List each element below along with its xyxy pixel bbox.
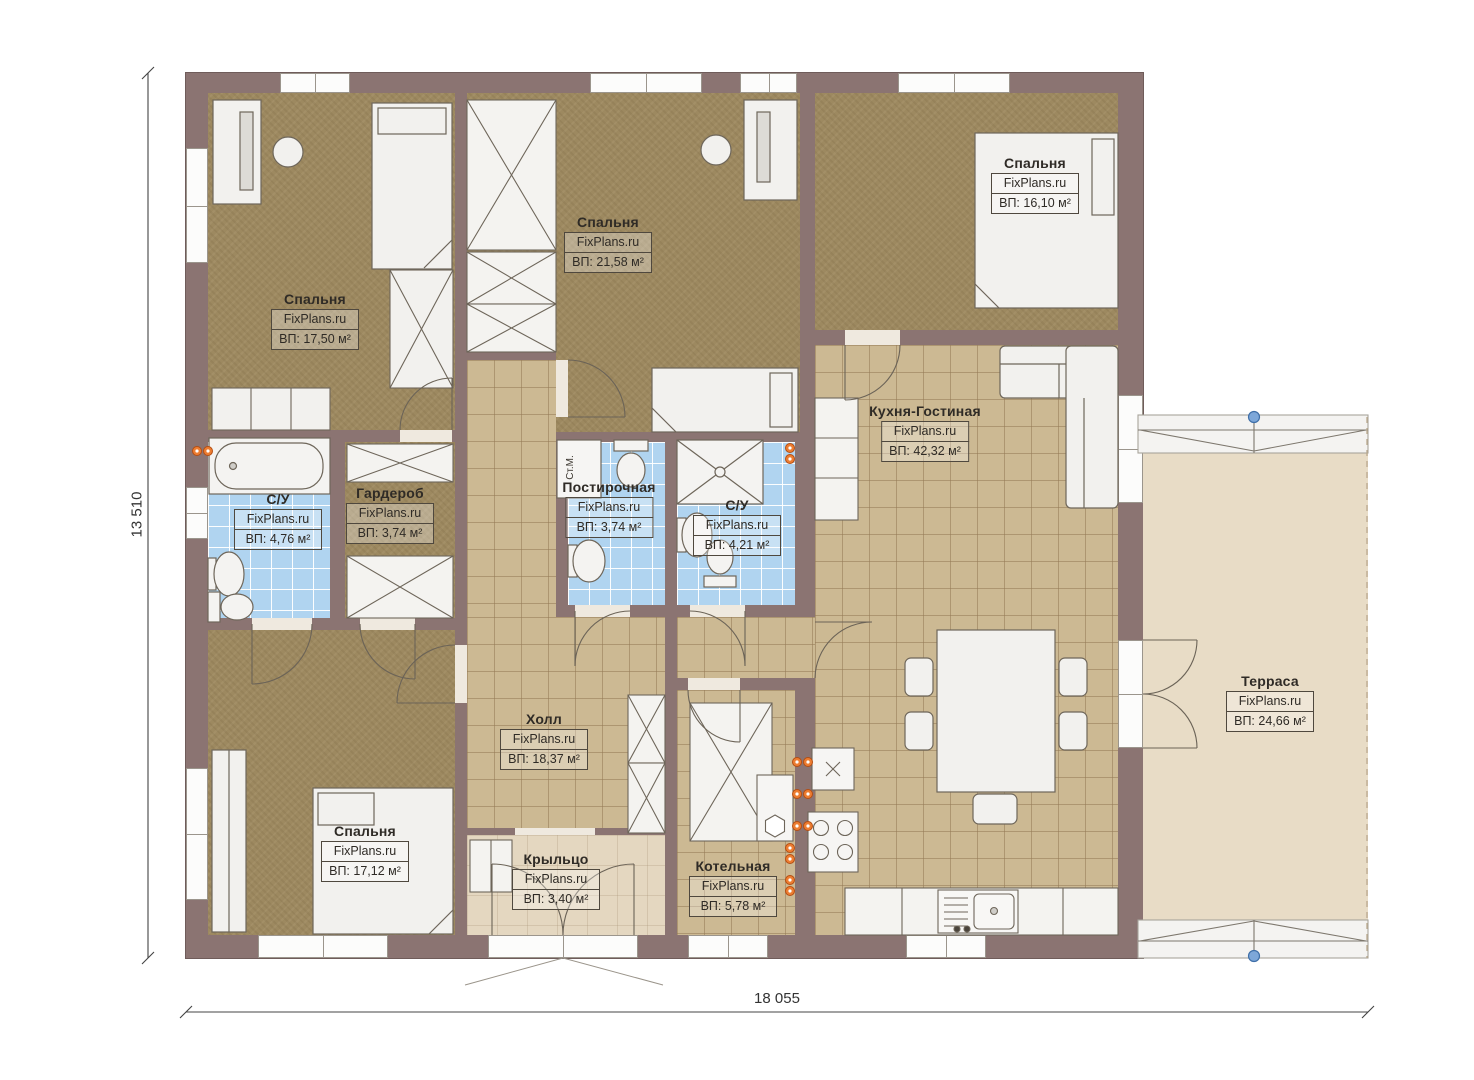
room-name: Спальня xyxy=(334,823,396,839)
watermark: FixPlans.ru xyxy=(234,509,322,530)
porch-canopy-outline xyxy=(465,958,663,985)
room-name: Кухня-Гостиная xyxy=(869,403,981,419)
bench-porch xyxy=(470,840,512,892)
closet-bedroom-2 xyxy=(467,100,556,352)
room-area: ВП: 3,74 м² xyxy=(346,523,434,544)
fridge-icon xyxy=(812,748,854,790)
room-name: С/У xyxy=(725,497,748,513)
room-area: ВП: 21,58 м² xyxy=(564,252,652,273)
room-label-kitchen-living: Кухня-Гостиная FixPlans.ru ВП: 42,32 м² xyxy=(869,403,981,462)
room-label-terrace: Терраса FixPlans.ru ВП: 24,66 м² xyxy=(1226,673,1314,732)
dining-table-icon xyxy=(905,630,1087,824)
watermark: FixPlans.ru xyxy=(321,841,409,862)
room-label-hall: Холл FixPlans.ru ВП: 18,37 м² xyxy=(500,711,588,770)
sink-bathroom-1 xyxy=(208,552,244,596)
room-area: ВП: 3,74 м² xyxy=(565,517,653,538)
watermark: FixPlans.ru xyxy=(500,729,588,750)
room-area: ВП: 4,76 м² xyxy=(234,529,322,550)
shower-icon xyxy=(677,440,763,504)
watermark: FixPlans.ru xyxy=(346,503,434,524)
room-name: С/У xyxy=(266,491,289,507)
bed-bedroom-1 xyxy=(372,103,452,269)
sink-laundry xyxy=(568,540,605,582)
room-area: ВП: 5,78 м² xyxy=(689,896,777,917)
watermark: FixPlans.ru xyxy=(271,309,359,330)
room-label-bedroom-3: Спальня FixPlans.ru ВП: 16,10 м² xyxy=(991,155,1079,214)
room-label-bedroom-1: Спальня FixPlans.ru ВП: 17,50 м² xyxy=(271,291,359,350)
room-area: ВП: 3,40 м² xyxy=(512,889,600,910)
watermark: FixPlans.ru xyxy=(1226,691,1314,712)
watermark: FixPlans.ru xyxy=(693,515,781,536)
room-label-bathroom-2: С/У FixPlans.ru ВП: 4,21 м² xyxy=(693,497,781,556)
room-area: ВП: 42,32 м² xyxy=(881,441,969,462)
sofa-icon xyxy=(1000,346,1118,508)
desk-bedroom-1 xyxy=(213,100,303,204)
room-label-bedroom-2: Спальня FixPlans.ru ВП: 21,58 м² xyxy=(564,214,652,273)
dimension-width-label: 18 055 xyxy=(717,990,837,1007)
floor-plan-canvas: Спальня FixPlans.ru ВП: 17,50 м² Спальня… xyxy=(0,0,1474,1080)
dresser-bedroom-1 xyxy=(212,388,330,430)
watermark: FixPlans.ru xyxy=(689,876,777,897)
watermark: FixPlans.ru xyxy=(991,173,1079,194)
room-area: ВП: 4,21 м² xyxy=(693,535,781,556)
room-area: ВП: 24,66 м² xyxy=(1226,711,1314,732)
room-name: Котельная xyxy=(695,858,770,874)
room-label-boiler: Котельная FixPlans.ru ВП: 5,78 м² xyxy=(689,858,777,917)
water-heater-icon xyxy=(757,775,793,841)
stove-icon xyxy=(808,812,858,872)
watermark: FixPlans.ru xyxy=(881,421,969,442)
room-name: Постирочная xyxy=(562,479,655,495)
watermark: FixPlans.ru xyxy=(565,497,653,518)
room-area: ВП: 17,50 м² xyxy=(271,329,359,350)
room-area: ВП: 17,12 м² xyxy=(321,861,409,882)
toilet-bathroom-1 xyxy=(208,592,253,622)
room-name: Гардероб xyxy=(356,485,424,501)
closet-hall xyxy=(628,695,665,833)
closet-bedroom-1 xyxy=(390,270,453,388)
kitchen-sink-icon xyxy=(938,890,1018,933)
room-name: Спальня xyxy=(284,291,346,307)
room-name: Терраса xyxy=(1241,673,1299,689)
room-label-laundry: Постирочная FixPlans.ru ВП: 3,74 м² xyxy=(562,479,655,538)
watermark: FixPlans.ru xyxy=(512,869,600,890)
bathtub-icon xyxy=(209,438,330,494)
room-name: Спальня xyxy=(577,214,639,230)
room-label-wardrobe: Гардероб FixPlans.ru ВП: 3,74 м² xyxy=(346,485,434,544)
washing-machine-label: Ст.М. xyxy=(565,455,576,480)
room-area: ВП: 18,37 м² xyxy=(500,749,588,770)
kitchen-tall-units xyxy=(815,398,858,520)
bed-bedroom-2 xyxy=(652,368,798,432)
wardrobe-bedroom-4 xyxy=(212,750,246,932)
room-label-porch: Крыльцо FixPlans.ru ВП: 3,40 м² xyxy=(512,851,600,910)
desk-bedroom-2 xyxy=(701,100,797,200)
room-name: Спальня xyxy=(1004,155,1066,171)
room-label-bathroom-1: С/У FixPlans.ru ВП: 4,76 м² xyxy=(234,491,322,550)
dimension-height-label: 13 510 xyxy=(129,470,146,560)
watermark: FixPlans.ru xyxy=(564,232,652,253)
room-area: ВП: 16,10 м² xyxy=(991,193,1079,214)
room-name: Холл xyxy=(526,711,562,727)
room-label-bedroom-4: Спальня FixPlans.ru ВП: 17,12 м² xyxy=(321,823,409,882)
room-name: Крыльцо xyxy=(523,851,588,867)
